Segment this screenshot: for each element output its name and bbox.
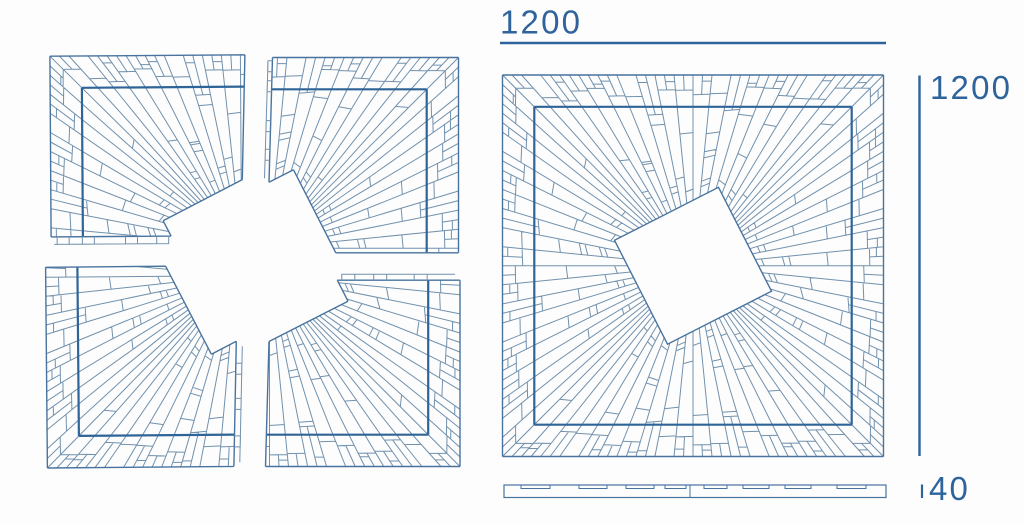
- svg-text:1200: 1200: [930, 69, 1012, 106]
- svg-text:1200: 1200: [500, 4, 582, 41]
- svg-text:40: 40: [929, 470, 970, 507]
